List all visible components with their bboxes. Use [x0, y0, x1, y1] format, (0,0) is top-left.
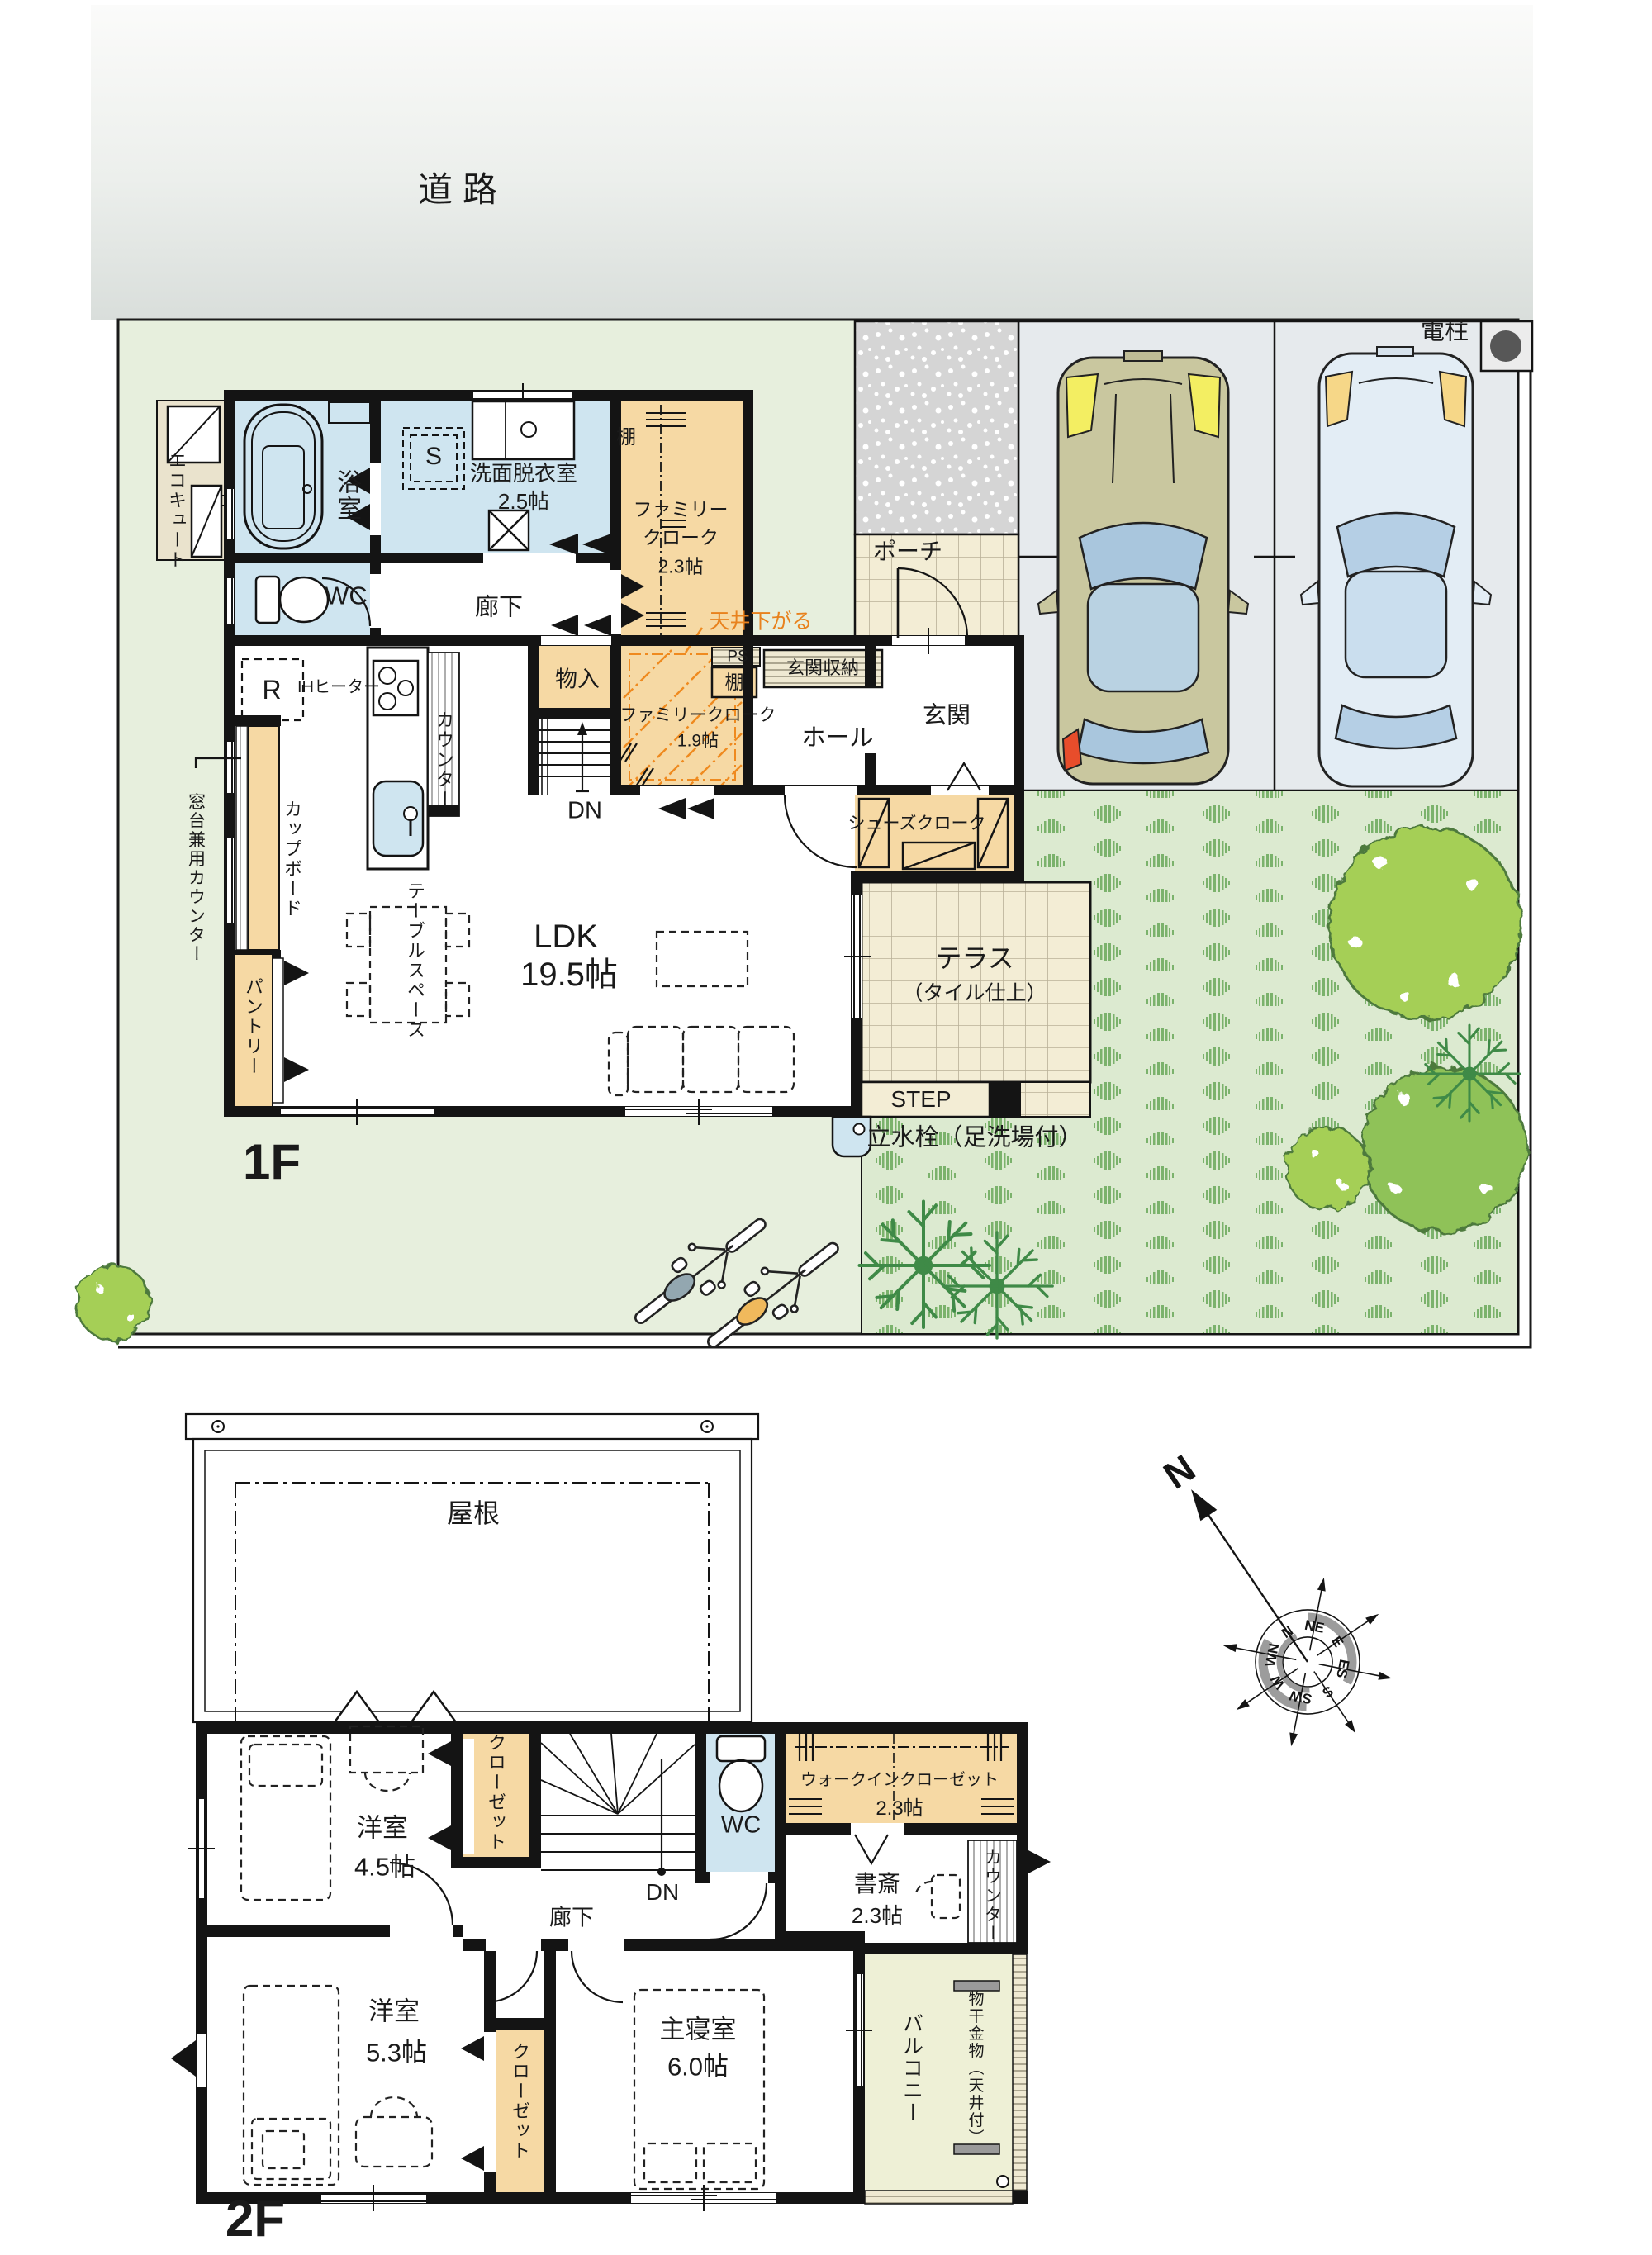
car-khaki: [1038, 351, 1248, 784]
balcony-label: バルコニー: [901, 2013, 922, 2124]
room-label-fc23-2: クローク: [643, 529, 719, 548]
room-label-fc19-1: ファミリークローク: [620, 707, 776, 724]
tree-icon: [1361, 1067, 1526, 1232]
floor-title-1f: 1F: [243, 1137, 301, 1187]
road-label: 道路: [418, 173, 507, 207]
room-label-wc2: WC: [721, 1814, 761, 1838]
master-label: 主寝室: [660, 2017, 737, 2043]
madodai-label: 窓台兼用カウンター: [188, 793, 205, 964]
washer-label: S: [425, 444, 442, 469]
closet-bottom-label: クローゼット: [510, 2042, 529, 2161]
utility-pole-label: 電柱: [1421, 320, 1469, 344]
monohoshi-label: 物干金物（天井付）: [967, 1991, 983, 2147]
vanity-icon: [472, 401, 574, 459]
room-label-fc19-2: 1.9帖: [677, 733, 719, 750]
svg-text:E: E: [1328, 1634, 1346, 1650]
shelf-label: 棚: [725, 673, 744, 692]
room-label-bath: 浴室: [334, 469, 358, 522]
step-label: STEP: [890, 1088, 951, 1111]
tree-icon: [1329, 828, 1521, 1019]
wic-size-label: 2.3帖: [876, 1799, 923, 1819]
counter-label-2f: カウンター: [984, 1849, 1001, 1944]
pantry-label: パントリー: [244, 977, 262, 1076]
room-label-y53: 洋室: [368, 1999, 420, 2025]
utility-pole-icon: [1481, 321, 1532, 371]
toilet-2f-icon: [717, 1736, 765, 1811]
dn-label-2f: DN: [646, 1881, 679, 1904]
study-label: 書斎: [854, 1873, 900, 1896]
compass-rose: N N NE E ES S SW W WN: [1096, 1406, 1427, 1782]
porch-label: ポーチ: [873, 540, 942, 563]
room-label-rouka2: 廊下: [549, 1907, 594, 1930]
ps-label: PS: [727, 649, 748, 665]
study-size-label: 2.3帖: [852, 1905, 903, 1926]
roof-label: 屋根: [447, 1500, 500, 1526]
shelf-label-top: 棚: [616, 428, 636, 448]
ih-cooktop-icon: [373, 661, 418, 715]
ih-label: IHヒーター: [297, 679, 380, 695]
floor-plan-drawing: N N NE E ES S SW W WN: [0, 0, 1652, 2255]
room-label-wc1: WC: [325, 583, 368, 609]
outdoor-tap-icon: [833, 1117, 871, 1156]
wic-label: ウォークインクローゼット: [800, 1772, 999, 1788]
gravel-area: [855, 321, 1018, 534]
tap-label: 立水栓（足洗場付）: [866, 1127, 1082, 1151]
closet-top-label: クローゼット: [487, 1733, 505, 1852]
ecocute-label: エコキュート: [167, 451, 185, 570]
genkan-storage-label: 玄関収納: [786, 659, 859, 677]
room-label-rouka1: 廊下: [475, 596, 523, 620]
tree-icon: [1286, 1127, 1369, 1210]
terrace-note-label: （タイル仕上）: [902, 984, 1047, 1004]
room-label-fc23-1: ファミリー: [634, 501, 729, 520]
compass-north-label: N: [1156, 1446, 1203, 1498]
floor-title-2f: 2F: [225, 2194, 285, 2245]
room-label-ldk: LDK: [534, 920, 598, 953]
shoe-closet-label: シューズクローク: [848, 815, 986, 833]
toilet-1f-icon: [256, 577, 328, 623]
room-label-y45: 洋室: [357, 1816, 408, 1841]
room-label-senmen-size: 2.5帖: [498, 491, 549, 512]
svg-text:NE: NE: [1303, 1617, 1326, 1636]
svg-text:S: S: [1319, 1683, 1336, 1701]
fridge-label: R: [262, 676, 281, 703]
tree-icon: [76, 1265, 150, 1340]
room-label-senmen: 洗面脱衣室: [470, 463, 577, 484]
room-label-hall: ホール: [801, 727, 873, 751]
ceiling-note-label: 天井下がる: [709, 612, 812, 633]
terrace-label: テラス: [935, 945, 1014, 971]
table-space-label: テーブルスペース: [406, 881, 424, 1040]
svg-text:ES: ES: [1333, 1658, 1352, 1679]
room-label-ldk-size: 19.5帖: [520, 958, 618, 991]
room-label-genkan: 玄関: [923, 705, 971, 729]
cupboard-strip: [248, 726, 279, 950]
master-size-label: 6.0帖: [667, 2054, 729, 2080]
room-label-y53-size: 5.3帖: [366, 2040, 427, 2066]
room-label-fc23-3: 2.3帖: [658, 558, 704, 577]
dn-label-1f: DN: [567, 800, 602, 824]
laundry-basket-icon: [489, 510, 529, 550]
cupboard-label: カップボード: [282, 800, 301, 919]
room-label-monoire: 物入: [555, 669, 600, 691]
road-area: [91, 5, 1533, 320]
counter-label-1f: カウンター: [434, 710, 453, 809]
floor-plan-page: N N NE E ES S SW W WN 道路 電柱 浴室 洗面脱衣室 2.5…: [0, 0, 1652, 2255]
car-blue: [1301, 347, 1491, 786]
roof-2f: [186, 1414, 758, 1722]
room-label-y45-size: 4.5帖: [354, 1854, 415, 1880]
